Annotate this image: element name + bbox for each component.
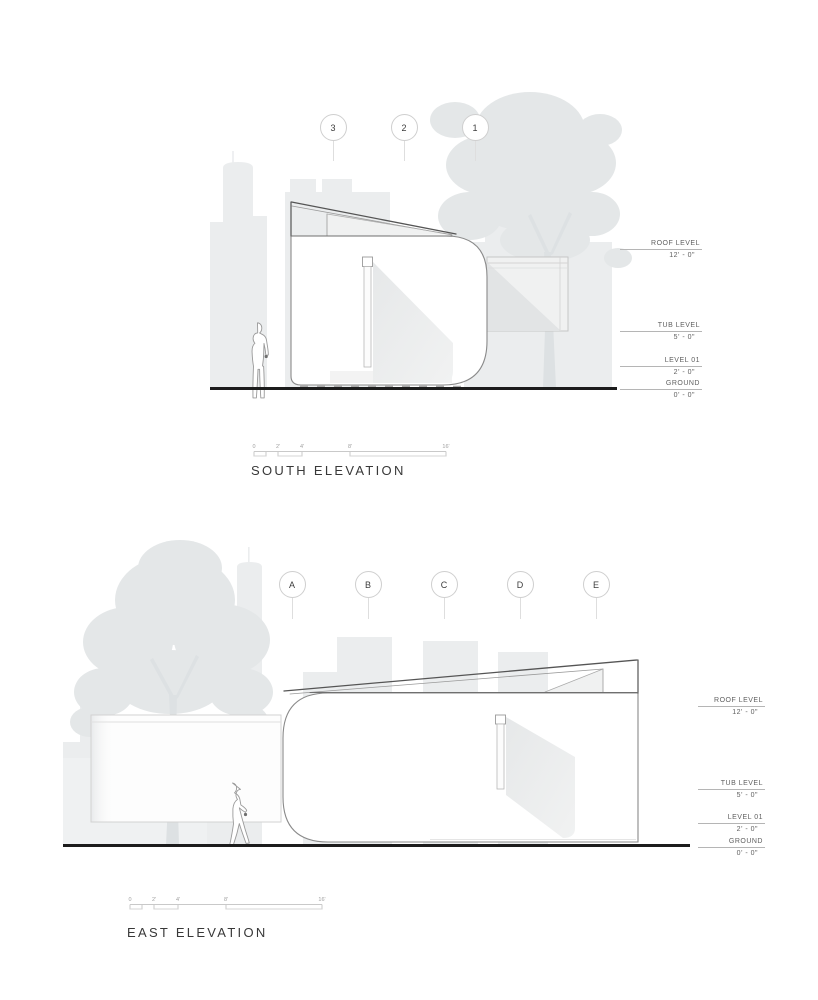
- level-dimension: 2' - 0": [674, 369, 695, 376]
- level-dimension: 5' - 0": [737, 792, 758, 799]
- grid-bubble: 3: [320, 114, 347, 141]
- svg-text:2': 2': [276, 444, 280, 450]
- svg-text:0: 0: [128, 897, 131, 903]
- level-line: [698, 789, 765, 790]
- level-dimension: 0' - 0": [674, 392, 695, 399]
- grid-marker-3: 3: [320, 114, 347, 161]
- level-dimension: 12' - 0": [669, 252, 695, 259]
- window-slit: [363, 257, 373, 367]
- grid-bubble: B: [355, 571, 382, 598]
- grid-marker-1: 1: [462, 114, 489, 161]
- grid-leader-line: [520, 598, 521, 619]
- grid-leader-line: [596, 598, 597, 619]
- level-name: ROOF LEVEL: [651, 240, 700, 247]
- svg-text:2': 2': [152, 897, 156, 903]
- level-line: [620, 366, 702, 367]
- grid-marker-A: A: [279, 571, 306, 619]
- grid-leader-line: [475, 141, 476, 161]
- grid-marker-D: D: [507, 571, 534, 619]
- grid-marker-2: 2: [391, 114, 418, 161]
- svg-text:4': 4': [176, 897, 180, 903]
- grid-leader-line: [368, 598, 369, 619]
- level-name: GROUND: [666, 380, 700, 387]
- level-name: TUB LEVEL: [658, 322, 700, 329]
- grid-leader-line: [292, 598, 293, 619]
- scale-bar-south: 0 2' 4' 8' 16': [250, 441, 460, 459]
- grid-marker-E: E: [583, 571, 610, 619]
- level-dimension: 0' - 0": [737, 850, 758, 857]
- svg-text:0: 0: [252, 444, 255, 450]
- elevation-sheet: 3 2 1 ROOF LEVEL 12' - 0" TUB LEVEL 5' -…: [0, 0, 818, 1000]
- level-name: ROOF LEVEL: [714, 697, 763, 704]
- window-slit-east: [496, 715, 506, 789]
- svg-text:8': 8': [224, 897, 228, 903]
- level-name: GROUND: [729, 838, 763, 845]
- grid-bubble: C: [431, 571, 458, 598]
- left-wall-volume: [91, 715, 281, 822]
- level-dimension: 12' - 0": [732, 709, 758, 716]
- grid-leader-line: [444, 598, 445, 619]
- level-dimension: 2' - 0": [737, 826, 758, 833]
- level-name: TUB LEVEL: [721, 780, 763, 787]
- svg-text:16': 16': [318, 897, 325, 903]
- east-elevation-title: EAST ELEVATION: [127, 925, 268, 940]
- south-elevation-drawing: [210, 92, 632, 398]
- grid-leader-line: [333, 141, 334, 161]
- grid-marker-C: C: [431, 571, 458, 619]
- level-line: [698, 706, 765, 707]
- level-name: LEVEL 01: [728, 814, 763, 821]
- grid-bubble: 2: [391, 114, 418, 141]
- svg-text:16': 16': [442, 444, 449, 450]
- grid-leader-line: [404, 141, 405, 161]
- grid-bubble: A: [279, 571, 306, 598]
- level-line: [620, 249, 702, 250]
- south-elevation-title: SOUTH ELEVATION: [251, 463, 406, 478]
- svg-text:8': 8': [348, 444, 352, 450]
- grid-bubble: 1: [462, 114, 489, 141]
- level-line: [620, 389, 702, 390]
- grid-marker-B: B: [355, 571, 382, 619]
- level-name: LEVEL 01: [665, 357, 700, 364]
- svg-text:4': 4': [300, 444, 304, 450]
- level-line: [698, 847, 765, 848]
- grid-bubble: E: [583, 571, 610, 598]
- scale-bar-east: 0 2' 4' 8' 16': [126, 894, 336, 912]
- grid-bubble: D: [507, 571, 534, 598]
- level-dimension: 5' - 0": [674, 334, 695, 341]
- tub-volume: [487, 257, 568, 331]
- level-line: [620, 331, 702, 332]
- level-line: [698, 823, 765, 824]
- building-body-east: [283, 693, 638, 842]
